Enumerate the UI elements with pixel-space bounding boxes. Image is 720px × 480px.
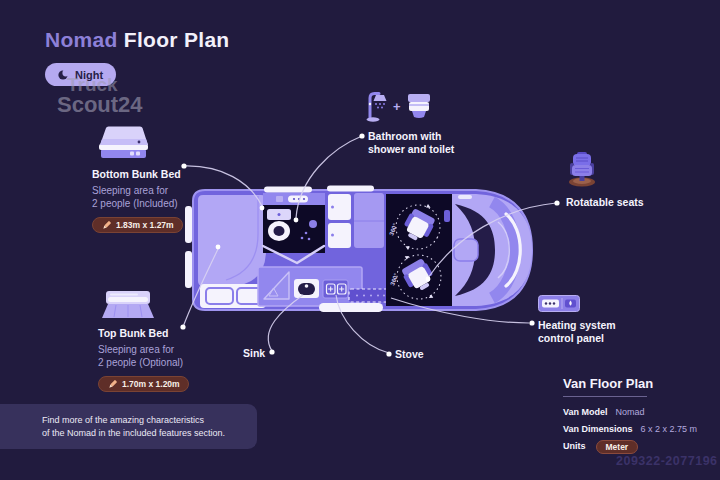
top-bunk-bed-icon — [98, 287, 158, 321]
bottom-bunk-dimensions-badge: 1.83m x 1.27m — [92, 217, 183, 233]
callout-bathroom: + Bathroom with shower and toilet — [366, 90, 454, 156]
spec-row-van-model: Van ModelNomad — [563, 407, 645, 417]
footer-note-line-1: Find more of the amazing characteristics — [42, 414, 245, 427]
bottom-bunk-desc-1: Sleeping area for — [92, 185, 183, 198]
bunk-bed-icon — [92, 125, 154, 159]
plan-sink — [294, 279, 319, 298]
watermark-brand-bottom: Scout24 — [57, 92, 143, 118]
spec-value-van-dimensions: 6 x 2 x 2.75 m — [641, 424, 698, 434]
units-badge[interactable]: Meter — [596, 440, 639, 454]
night-mode-label: Night — [75, 69, 103, 81]
spec-label-van-model: Van Model — [563, 407, 608, 417]
sink-label: Sink — [243, 347, 265, 360]
spec-value-van-model: Nomad — [616, 407, 645, 417]
plus-separator: + — [393, 99, 401, 114]
spec-label-van-dimensions: Van Dimensions — [563, 424, 633, 434]
plan-bench — [200, 284, 266, 308]
heating-control-panel-icon — [538, 295, 580, 312]
toilet-icon — [406, 93, 432, 119]
footer-note: Find more of the amazing characteristics… — [0, 404, 257, 449]
plan-bathroom — [263, 193, 325, 263]
callout-heating: Heating system control panel — [538, 295, 616, 345]
callout-bottom-bunk: Bottom Bunk Bed Sleeping area for 2 peop… — [92, 125, 183, 235]
bottom-bunk-title: Bottom Bunk Bed — [92, 168, 183, 181]
bottom-bunk-desc-2: 2 people (Included) — [92, 198, 183, 211]
page-title-rest: Floor Plan — [124, 28, 230, 51]
spec-row-van-dimensions: Van Dimensions6 x 2 x 2.75 m — [563, 424, 697, 434]
spec-panel-divider — [563, 396, 647, 397]
moon-icon — [58, 69, 70, 81]
ruler-pencil-icon — [101, 220, 112, 231]
plan-stove — [323, 280, 348, 298]
rotatable-seat-icon — [565, 152, 599, 188]
top-bunk-dimensions: 1.70m x 1.20m — [122, 379, 180, 389]
rotatable-seats-label: Rotatable seats — [566, 196, 644, 209]
heating-label-1: Heating system — [538, 319, 616, 332]
plan-toilet — [267, 209, 291, 241]
plan-door-handle — [444, 210, 450, 222]
plan-kitchen-counter — [258, 267, 362, 306]
bathroom-label-2: shower and toilet — [368, 143, 454, 156]
footer-note-line-2: of the Nomad in the included features se… — [42, 427, 245, 440]
van-floor-plan-illustration: 360° 360° — [178, 182, 540, 316]
page-title: Nomad Floor Plan — [45, 28, 230, 52]
plan-entry-step — [319, 303, 383, 312]
plan-console — [454, 239, 478, 261]
spec-label-units: Units — [563, 441, 586, 451]
spec-panel-title: Van Floor Plan — [563, 376, 653, 391]
callout-top-bunk: Top Bunk Bed Sleeping area for 2 people … — [98, 287, 189, 394]
watermark-listing-id: 209322-2077196 — [616, 454, 718, 468]
bottom-bunk-dimensions: 1.83m x 1.27m — [116, 220, 174, 230]
night-mode-toggle[interactable]: Night — [45, 63, 116, 86]
units-value: Meter — [606, 442, 629, 452]
ruler-pencil-icon — [107, 379, 118, 390]
top-bunk-desc-2: 2 people (Optional) — [98, 357, 189, 370]
plan-heating-unit — [349, 289, 391, 302]
top-bunk-desc-1: Sleeping area for — [98, 344, 189, 357]
heating-label-2: control panel — [538, 332, 616, 345]
spec-row-units: UnitsMeter — [563, 440, 638, 454]
plan-bed — [198, 195, 266, 286]
page-title-model: Nomad — [45, 28, 118, 51]
top-bunk-dimensions-badge: 1.70m x 1.20m — [98, 376, 189, 392]
top-bunk-title: Top Bunk Bed — [98, 327, 189, 340]
stove-label: Stove — [395, 348, 424, 361]
bathroom-label-1: Bathroom with — [368, 130, 454, 143]
van-rear-bumper — [185, 206, 192, 288]
shower-icon — [366, 90, 388, 122]
callout-rotatable-seats: Rotatable seats — [565, 152, 644, 209]
